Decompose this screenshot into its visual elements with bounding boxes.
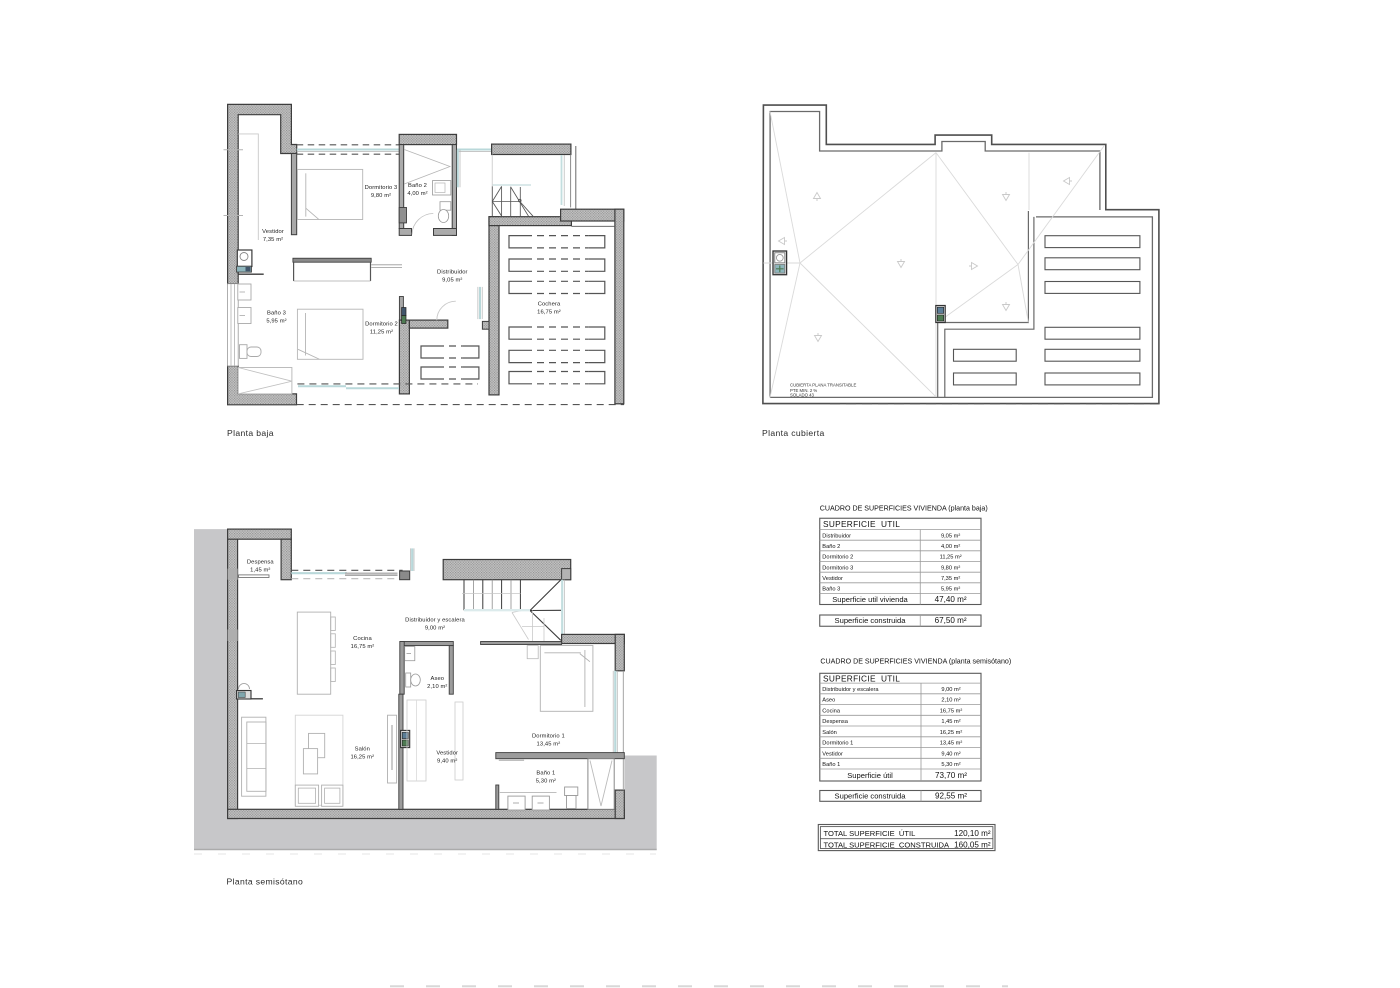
svg-text:Dormitorio 2: Dormitorio 2 xyxy=(822,555,853,561)
svg-text:Cocina: Cocina xyxy=(822,708,841,714)
svg-text:9,80 m²: 9,80 m² xyxy=(371,193,391,199)
svg-text:2,10 m²: 2,10 m² xyxy=(941,698,960,704)
svg-text:9,05 m²: 9,05 m² xyxy=(442,278,462,284)
svg-text:67,50 m²: 67,50 m² xyxy=(935,616,967,625)
svg-text:16,75 m²: 16,75 m² xyxy=(537,310,561,316)
svg-text:Baño 2: Baño 2 xyxy=(408,183,427,189)
svg-text:Vestidor: Vestidor xyxy=(822,751,843,757)
svg-text:Vestidor: Vestidor xyxy=(436,751,458,757)
svg-text:2,10 m²: 2,10 m² xyxy=(427,684,447,690)
svg-text:TOTAL SUPERFICIE CONSTRUIDA: TOTAL SUPERFICIE CONSTRUIDA xyxy=(824,840,951,849)
svg-text:SUPERFICIE UTIL: SUPERFICIE UTIL xyxy=(823,674,900,684)
svg-text:4,00 m²: 4,00 m² xyxy=(941,544,960,550)
svg-text:CUBIERTA PLANA TRANSITABLE: CUBIERTA PLANA TRANSITABLE xyxy=(790,383,856,388)
svg-text:Dormitorio 1: Dormitorio 1 xyxy=(822,741,853,747)
svg-text:5,95 m²: 5,95 m² xyxy=(941,587,960,593)
svg-text:73,70 m²: 73,70 m² xyxy=(935,771,967,780)
svg-text:Cochera: Cochera xyxy=(538,302,561,308)
svg-text:9,00 m²: 9,00 m² xyxy=(941,687,960,693)
svg-text:Distribuidor y escalera: Distribuidor y escalera xyxy=(822,687,879,693)
svg-text:9,40 m²: 9,40 m² xyxy=(437,759,457,765)
svg-text:13,45 m²: 13,45 m² xyxy=(940,741,963,747)
svg-text:Aseo: Aseo xyxy=(822,698,835,704)
svg-text:Vestidor: Vestidor xyxy=(822,576,843,582)
svg-text:Aseo: Aseo xyxy=(430,676,444,682)
svg-text:CUADRO DE SUPERFICIES VIVIENDA: CUADRO DE SUPERFICIES VIVIENDA (planta b… xyxy=(820,505,988,513)
svg-text:Vestidor: Vestidor xyxy=(262,229,284,235)
svg-text:SUPERFICIE UTIL: SUPERFICIE UTIL xyxy=(823,519,900,529)
svg-text:16,75 m²: 16,75 m² xyxy=(351,644,375,650)
svg-text:47,40 m²: 47,40 m² xyxy=(935,595,967,604)
svg-text:5,30 m²: 5,30 m² xyxy=(536,779,556,785)
svg-text:Planta baja: Planta baja xyxy=(227,428,274,438)
svg-text:Baño 1: Baño 1 xyxy=(536,771,555,777)
svg-text:120,10 m²: 120,10 m² xyxy=(954,829,991,838)
svg-text:92,55 m²: 92,55 m² xyxy=(935,792,967,801)
svg-text:Dormitorio 1: Dormitorio 1 xyxy=(532,734,565,740)
svg-text:4,00 m²: 4,00 m² xyxy=(407,191,427,197)
svg-text:Superficie util vivienda: Superficie util vivienda xyxy=(832,595,908,604)
svg-text:Baño 3: Baño 3 xyxy=(267,311,286,317)
svg-text:13,45 m²: 13,45 m² xyxy=(537,742,561,748)
svg-text:Baño 1: Baño 1 xyxy=(822,762,840,768)
svg-text:Distribuidor: Distribuidor xyxy=(822,533,851,539)
svg-text:16,75 m²: 16,75 m² xyxy=(940,708,963,714)
svg-text:160,05 m²: 160,05 m² xyxy=(954,840,991,849)
svg-text:11,25 m²: 11,25 m² xyxy=(940,555,962,561)
svg-text:Dormitorio 3: Dormitorio 3 xyxy=(822,565,853,571)
svg-text:7,35 m²: 7,35 m² xyxy=(263,237,283,243)
svg-text:5,30 m²: 5,30 m² xyxy=(941,762,960,768)
svg-text:9,40 m²: 9,40 m² xyxy=(941,751,960,757)
svg-text:CUADRO DE SUPERFICIES VIVIENDA: CUADRO DE SUPERFICIES VIVIENDA (planta s… xyxy=(820,657,1011,665)
svg-text:Distribuidor y escalera: Distribuidor y escalera xyxy=(405,618,465,624)
svg-text:16,25 m²: 16,25 m² xyxy=(940,730,963,736)
svg-text:9,80 m²: 9,80 m² xyxy=(941,565,960,571)
svg-text:Salón: Salón xyxy=(355,747,370,753)
svg-text:TOTAL SUPERFICIE ÚTIL: TOTAL SUPERFICIE ÚTIL xyxy=(824,829,916,838)
svg-text:Baño 3: Baño 3 xyxy=(822,587,840,593)
svg-text:Planta semisótano: Planta semisótano xyxy=(227,877,304,887)
svg-text:Despensa: Despensa xyxy=(247,560,275,566)
svg-text:SOLADO 43: SOLADO 43 xyxy=(790,392,814,397)
svg-text:Planta cubierta: Planta cubierta xyxy=(762,428,825,438)
svg-text:9,00 m²: 9,00 m² xyxy=(425,626,445,632)
svg-text:Distribuidor: Distribuidor xyxy=(437,270,468,276)
svg-text:Superficie construida: Superficie construida xyxy=(835,792,907,801)
svg-text:9,05 m²: 9,05 m² xyxy=(941,533,960,539)
svg-text:Cocina: Cocina xyxy=(353,636,372,642)
svg-text:Superficie construida: Superficie construida xyxy=(835,616,907,625)
svg-text:1,45 m²: 1,45 m² xyxy=(250,568,270,574)
svg-text:11,25 m²: 11,25 m² xyxy=(370,330,393,336)
svg-text:Despensa: Despensa xyxy=(822,719,848,725)
svg-text:Dormitorio 2: Dormitorio 2 xyxy=(365,322,398,328)
svg-text:1,45 m²: 1,45 m² xyxy=(941,719,960,725)
svg-text:Salón: Salón xyxy=(822,730,837,736)
svg-text:Dormitorio 3: Dormitorio 3 xyxy=(365,185,398,191)
svg-text:Superficie útil: Superficie útil xyxy=(847,771,893,780)
svg-text:16,25 m²: 16,25 m² xyxy=(350,755,374,761)
svg-text:7,35 m²: 7,35 m² xyxy=(941,576,960,582)
svg-text:5,95 m²: 5,95 m² xyxy=(266,319,286,325)
svg-text:Baño 2: Baño 2 xyxy=(822,544,840,550)
